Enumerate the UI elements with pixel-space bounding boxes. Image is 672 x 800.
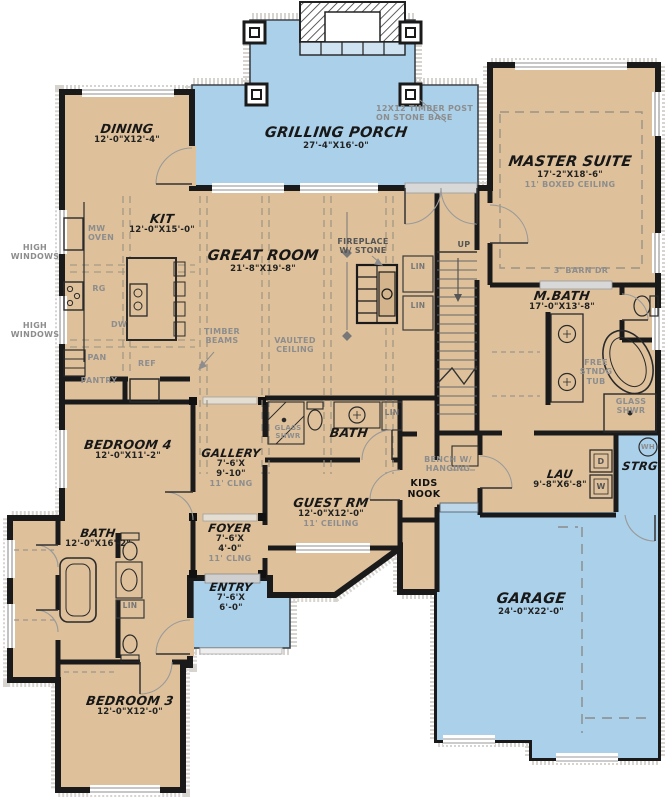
note-glass-shower-master: GLASS SHWR — [616, 397, 647, 416]
note-high-windows-1: HIGH WINDOWS — [11, 243, 60, 262]
room-label-foyer: FOYER 7'-6'X4'-0" 11' CLNG — [208, 522, 251, 564]
note-kids-nook: KIDS NOOK — [407, 478, 440, 500]
note-glass-shower-bath: GLASS SHWR — [275, 424, 302, 441]
room-label-laundry: LAU9'-8"X6'-8" — [533, 468, 587, 490]
note-washer: W — [596, 482, 605, 491]
note-linen-4: LIN — [123, 602, 138, 611]
note-dishwasher: DW — [111, 320, 127, 329]
note-water-heater: WH — [641, 443, 655, 451]
room-label-guest-room: GUEST RM12'-0"X12'-0" 11' CEILING — [293, 496, 368, 529]
note-dryer: D — [598, 457, 605, 466]
note-timber-post: 12X12 TIMBER POST ON STONE BASE — [376, 104, 473, 123]
note-free-standing-tub: FREE STNDG TUB — [580, 358, 613, 386]
note-linen-1: LIN — [411, 263, 426, 272]
grilling-porch-area — [192, 2, 478, 188]
note-pantry: PANTRY — [81, 376, 118, 385]
note-high-windows-2: HIGH WINDOWS — [11, 321, 60, 340]
note-barn-door: 3' BARN DR — [554, 266, 609, 275]
room-label-dining: DINING12'-0"X12'-4" — [94, 122, 160, 145]
note-refrigerator: REF — [138, 359, 156, 368]
room-label-kitchen: KIT12'-0"X15'-0" — [129, 212, 195, 235]
room-label-master-bath: M.BATH17'-0"X13'-8" — [529, 289, 595, 312]
room-label-entry: ENTRY 7'-6'X6'-0" — [210, 581, 253, 613]
note-linen-3: LIN — [385, 409, 400, 418]
note-fireplace: FIREPLACE W/ STONE — [337, 237, 388, 256]
room-label-gallery: GALLERY 7'-6'X9'-10" 11' CLNG — [201, 447, 260, 489]
note-bench-hanging: BENCH W/ HANGING — [424, 455, 472, 474]
outdoor-fireplace-icon — [300, 2, 405, 55]
note-range: RG — [92, 284, 105, 293]
note-microwave-oven: MW OVEN — [88, 224, 114, 243]
room-label-master-suite: MASTER SUITE17'-2"X18'-6" 11' BOXED CEIL… — [508, 155, 631, 190]
room-label-great-room: GREAT ROOM21'-8"X19'-8" — [208, 249, 319, 274]
floor-plan-page: DINING12'-0"X12'-4" GRILLING PORCH27'-4"… — [0, 0, 672, 800]
fireplace-icon — [357, 265, 397, 323]
note-vaulted-ceiling: VAULTED CEILING — [274, 336, 316, 355]
note-timber-beams: TIMBER BEAMS — [204, 327, 240, 346]
room-label-grilling-porch: GRILLING PORCH27'-4"X16'-0" — [265, 126, 408, 151]
room-label-bath-center: BATH — [330, 426, 368, 439]
note-pan: PAN — [88, 353, 107, 362]
room-label-bedroom4: BEDROOM 412'-0"X11'-2" — [84, 438, 172, 461]
room-label-bedroom3: BEDROOM 312'-0"X12'-0" — [86, 694, 174, 717]
room-label-garage: GARAGE24'-0"X22'-0" — [496, 592, 565, 617]
room-label-bath-left: BATH12'-0"X16'-2" — [65, 527, 131, 549]
note-linen-2: LIN — [411, 302, 426, 311]
note-stairs-up: UP — [458, 240, 471, 249]
floor-plan-drawing — [0, 0, 672, 800]
room-label-storage: STRG — [622, 460, 658, 472]
